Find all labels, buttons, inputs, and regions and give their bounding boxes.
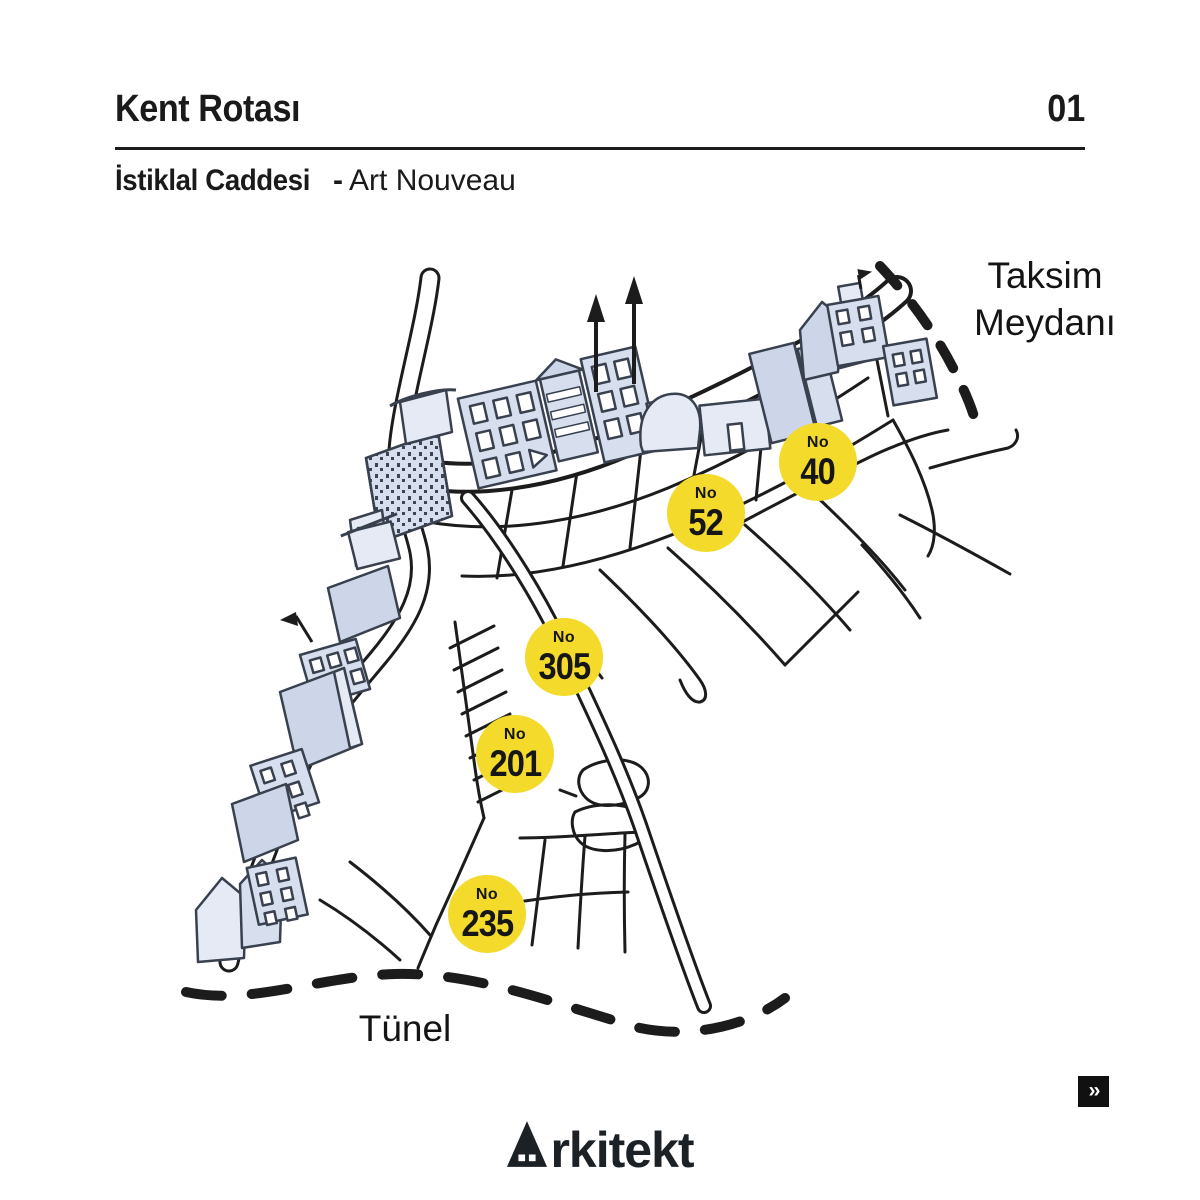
tunel-label: Tünel bbox=[330, 1005, 480, 1052]
marker-prefix: No bbox=[476, 887, 498, 903]
marker-number: 305 bbox=[538, 648, 590, 685]
tunel-label-line1: Tünel bbox=[330, 1005, 480, 1052]
marker-prefix: No bbox=[807, 435, 829, 451]
map-marker-no-40: No40 bbox=[779, 423, 857, 501]
marker-number: 201 bbox=[489, 745, 541, 782]
logo-house-a-icon bbox=[506, 1120, 548, 1173]
taksim-east-block bbox=[883, 339, 937, 406]
slanted-slab bbox=[232, 784, 298, 862]
double-chevron-right-icon: ›› bbox=[1089, 1080, 1099, 1101]
map-marker-no-305: No305 bbox=[525, 618, 603, 696]
logo-wordmark: rkitekt bbox=[550, 1127, 693, 1173]
map-marker-no-52: No52 bbox=[667, 474, 745, 552]
map-marker-no-235: No235 bbox=[448, 875, 526, 953]
marker-prefix: No bbox=[504, 727, 526, 743]
taksim-square-label: Taksim Meydanı bbox=[955, 252, 1135, 347]
marker-number: 40 bbox=[801, 453, 835, 490]
tunel-apartment bbox=[247, 858, 308, 927]
marker-prefix: No bbox=[695, 486, 717, 502]
next-slide-button[interactable]: ›› bbox=[1078, 1076, 1109, 1107]
mosque-hall bbox=[699, 399, 770, 456]
map-marker-no-201: No201 bbox=[476, 715, 554, 793]
skyline-buildings bbox=[350, 266, 937, 566]
map-illustration bbox=[0, 0, 1200, 1200]
page: Kent Rotası 01 İstiklal Caddesi-Art Nouv… bbox=[0, 0, 1200, 1200]
west-road bbox=[229, 278, 430, 962]
west-buildings bbox=[196, 514, 408, 962]
taksim-label-line2: Meydanı bbox=[955, 299, 1135, 346]
brand-logo: rkitekt bbox=[0, 1120, 1200, 1173]
marker-number: 52 bbox=[689, 504, 723, 541]
taksim-label-line1: Taksim bbox=[955, 252, 1135, 299]
marker-prefix: No bbox=[553, 630, 575, 646]
marker-number: 235 bbox=[461, 905, 513, 942]
